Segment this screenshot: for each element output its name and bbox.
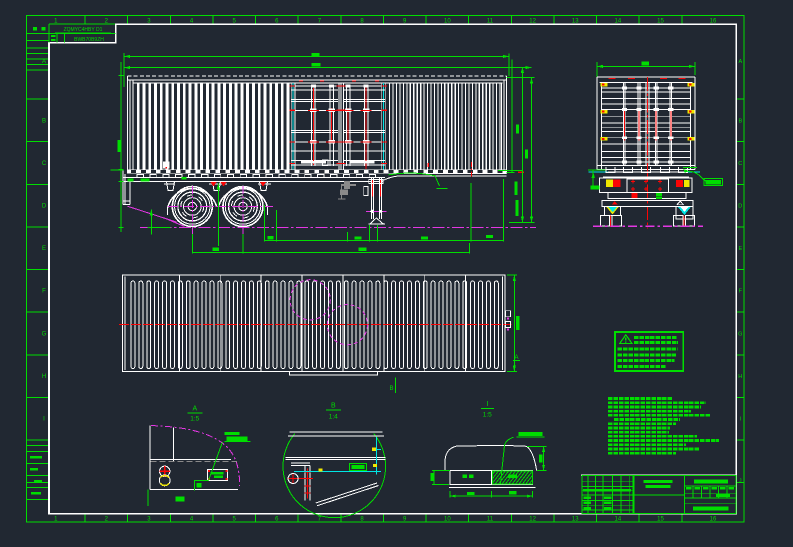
svg-text:I: I xyxy=(486,401,488,408)
svg-text:10: 10 xyxy=(444,517,451,523)
svg-text:C: C xyxy=(738,161,742,167)
svg-text:B: B xyxy=(389,386,393,392)
svg-text:D: D xyxy=(738,204,742,210)
svg-text:G: G xyxy=(42,331,47,337)
svg-text:F: F xyxy=(42,289,46,295)
svg-text:16: 16 xyxy=(710,517,717,523)
svg-text:A: A xyxy=(738,59,742,65)
svg-text:1:4: 1:4 xyxy=(329,413,338,420)
svg-text:B: B xyxy=(738,118,742,124)
svg-text:11: 11 xyxy=(487,517,494,523)
svg-text:A: A xyxy=(192,406,197,413)
svg-text:G: G xyxy=(738,331,742,337)
svg-text:B: B xyxy=(42,118,46,124)
svg-text:BWB70B9ZH: BWB70B9ZH xyxy=(74,37,104,43)
svg-text:J: J xyxy=(739,479,742,485)
svg-text:E: E xyxy=(42,246,46,252)
svg-text:H: H xyxy=(42,374,46,380)
svg-text:C: C xyxy=(42,161,47,167)
svg-text:D: D xyxy=(42,204,47,210)
svg-text:B: B xyxy=(331,403,336,410)
svg-text:E: E xyxy=(738,246,742,252)
svg-text:13: 13 xyxy=(572,517,579,523)
svg-text:15: 15 xyxy=(657,517,664,523)
svg-text:1:5: 1:5 xyxy=(483,412,492,419)
svg-text:1:5: 1:5 xyxy=(190,416,199,423)
svg-text:14: 14 xyxy=(615,517,622,523)
svg-text:H: H xyxy=(738,374,742,380)
svg-text:12: 12 xyxy=(529,517,536,523)
